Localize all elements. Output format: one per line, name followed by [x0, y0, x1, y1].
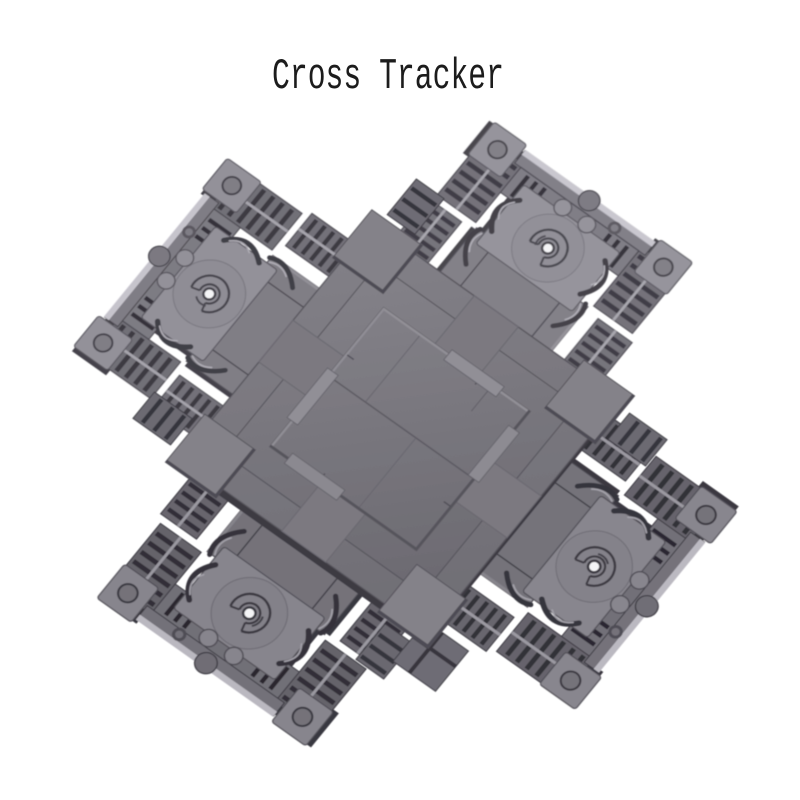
svg-text:Cross Tracker: Cross Tracker: [272, 52, 504, 102]
